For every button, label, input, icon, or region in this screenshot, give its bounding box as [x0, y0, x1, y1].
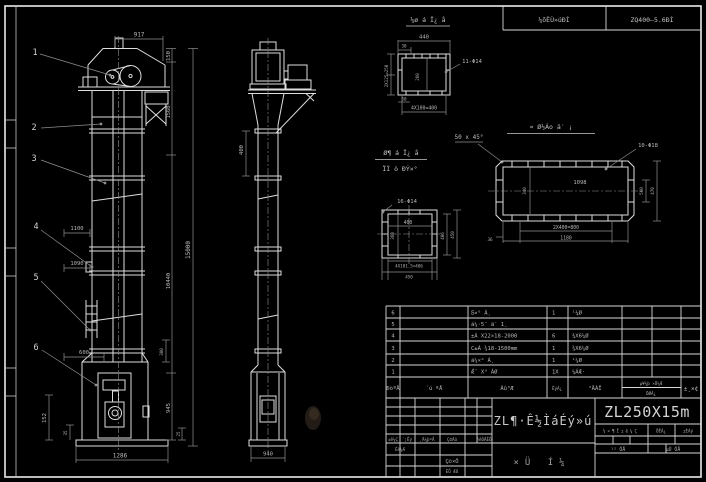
drawing-canvas: ¼õËÙ»úÐÍ ZQ400—5.6ÐÍ — [0, 0, 706, 482]
square-detail-dim-lines — [382, 205, 461, 280]
dim-front-total-height: 15000 — [185, 241, 192, 259]
part-row-no: 1 — [391, 370, 394, 376]
part-row-name: á¼·5¨ ä′ 1¸ — [471, 321, 507, 328]
stage-mark-label: ½×¶Î±ê¼Ç — [603, 429, 639, 435]
balloon-4: 4 — [33, 222, 38, 232]
part-row-name: Ƽ×° Á¸ — [471, 310, 491, 317]
dim-front-boot-left-2: 35 — [63, 430, 68, 436]
part-row-no: 6 — [391, 311, 394, 317]
dim-channel-offset: 30 — [401, 44, 407, 49]
chamfer-note: 50 x 45° — [455, 134, 484, 141]
side-view-geometry — [248, 42, 316, 446]
parts-header-code: ´ú ºÅ — [426, 385, 443, 392]
dim-channel-left: 2X125=250 — [384, 64, 389, 87]
rev-header-mark: ±ê¼Ç — [388, 437, 399, 443]
channel-holes-callout: 11-Φ14 — [462, 59, 483, 65]
balloon-6: 6 — [33, 343, 38, 353]
flange-detail-label: ¤ Ø½Áo ä′ ¡ — [529, 122, 572, 131]
part-row-no: 4 — [391, 334, 395, 340]
part-row-name: C±Á ¾18-1500mm — [471, 345, 518, 352]
model-number: ZL250X15m — [604, 403, 690, 421]
date-label: ÈÕ ÆÚ — [446, 469, 459, 474]
parts-header-name: Ãû³Æ — [500, 385, 514, 392]
drawing-title: ZL¶·Ê½ÌáÉý»ú — [494, 413, 593, 428]
balloon-leaders — [40, 54, 111, 386]
parts-table-rows: 6 Ƽ×° Á¸ 1 ¹¼Ø 5 á¼·5¨ ä′ 1¸ 4 ±Á X22×18… — [391, 310, 589, 376]
dim-flange-corner: 36 — [487, 237, 493, 242]
part-row-no: 2 — [391, 358, 394, 364]
dim-channel-top: 440 — [419, 35, 429, 41]
mass-label: ÖÊÁ¿ — [656, 429, 667, 434]
dim-front-top-width: 917 — [134, 32, 145, 39]
dim-square-bottom-1: 4X101.5=406 — [395, 264, 423, 269]
dim-square-right-2: 450 — [450, 231, 455, 239]
sheet-inner-border — [5, 6, 16, 477]
dim-channel-inner: 260 — [415, 73, 420, 81]
part-row-name: Ǽ¨ X° ÁØ — [471, 368, 498, 376]
channel-detail-label: ¼ø á Ï¿ å — [410, 15, 445, 24]
rev-header-date: ÄêÔÂÈÕ — [476, 437, 492, 442]
part-row-name: ±Á X22×18-2000 — [471, 333, 517, 340]
dim-flange-bottom-2: 1180 — [560, 236, 572, 242]
part-row-material: ¾X6¼Ø — [572, 333, 589, 340]
part-row-qty: 1 — [552, 311, 555, 317]
sheet-border — [5, 6, 701, 477]
dim-flange-left: 340 — [522, 187, 527, 195]
dim-square-inner-v: 360 — [390, 232, 395, 240]
dim-flange-inner: 1098 — [573, 180, 586, 186]
dim-side-base-width: 940 — [263, 452, 273, 458]
dim-front-left-1: 1100 — [70, 226, 83, 232]
dim-channel-bottom: 4X100=400 — [411, 106, 437, 112]
part-row-qty: 1 — [552, 358, 555, 364]
part-row-no: 5 — [391, 322, 394, 328]
balloon-2: 2 — [31, 123, 36, 133]
dim-front-right-4: 945 — [166, 403, 172, 413]
dim-square-bottom-2: 450 — [405, 275, 413, 280]
parts-header-material: ²ÄÁÏ — [588, 385, 601, 392]
smudge-mark — [305, 406, 321, 430]
chamfer-leader — [455, 142, 503, 163]
dim-flange-right-2: 470 — [650, 187, 655, 195]
part-row-qty: 6 — [552, 334, 555, 340]
stamp-label: Ç©×Ö — [445, 458, 458, 465]
dim-front-right-5: 25 — [176, 431, 181, 437]
cad-sheet: ¼õËÙ»úÐÍ ZQ400—5.6ÐÍ — [0, 0, 706, 482]
rev-header-count: ´¦Êý — [402, 437, 413, 442]
dim-side-flange: 400 — [239, 145, 245, 155]
dim-front-right-3: 10440 — [166, 273, 172, 290]
parts-header-note-bottom: ÖØÁ¿ — [646, 391, 657, 396]
sheets-total-label: ¹² ÕÅ — [611, 446, 626, 453]
dim-front-boot-left-1: 152 — [42, 413, 48, 423]
front-view-geometry — [76, 38, 170, 446]
part-row-material: ¾X6¼Ø — [572, 345, 589, 352]
dim-front-right-2: 1560 — [166, 105, 172, 118]
header-cell-left-label: ¼õËÙ»úÐÍ — [538, 15, 569, 24]
dim-flange-bottom-1: 2X400=800 — [553, 225, 579, 231]
parts-header-no: ÐòºÅ — [386, 385, 400, 392]
dim-front-right-1: 150 — [166, 51, 172, 61]
part-row-qty: 1 — [552, 346, 555, 352]
rev-header-fileno: ¸Ä¼þºÅ — [419, 437, 435, 443]
parts-table-header: ÐòºÅ ´ú ºÅ Ãû³Æ ÊýÁ¿ ²ÄÁÏ µ¥¼þ ×Ü¼Æ ÖØÁ¿… — [386, 381, 698, 396]
flange-holes-callout: 10-Φ18 — [638, 143, 658, 149]
mid-label-line1: Ø¶ á Ï¿ å — [383, 148, 418, 157]
parts-header-qty: ÊýÁ¿ — [552, 386, 563, 391]
dim-front-boot-top: 600 — [79, 350, 89, 356]
part-row-no: 3 — [391, 346, 394, 352]
part-row-qty: 1X — [552, 370, 559, 376]
dim-square-right-1: 406 — [440, 232, 445, 240]
dim-channel-bottom-small: 50 — [401, 97, 407, 102]
channel-detail-geometry — [398, 54, 450, 95]
parts-header-remark: ±¸×¢ — [684, 386, 699, 393]
dim-front-boot-width: 1286 — [113, 453, 128, 460]
dim-square-inner-h: 400 — [404, 220, 413, 226]
part-row-material: ¹¼Ø — [572, 310, 583, 317]
balloon-1: 1 — [32, 48, 37, 58]
mid-label-line2: ÏÌ ò ÐÝ×° — [382, 164, 417, 173]
rev-header-sign: Ç©Ãû — [447, 437, 458, 442]
dim-flange-right-1: 560 — [639, 187, 644, 195]
balloon-3: 3 — [31, 154, 36, 164]
dim-front-right-6: 380 — [159, 348, 164, 356]
balloon-5: 5 — [33, 273, 38, 283]
sheet-type-label: ×Ü Í¼ — [513, 456, 570, 468]
square-holes-callout: 16-Φ14 — [397, 199, 418, 205]
header-cell-right-label: ZQ400—5.6ÐÍ — [630, 15, 673, 24]
part-row-material: ¹¼Ø — [572, 357, 583, 364]
parts-header-note-top: µ¥¼þ ×Ü¼Æ — [640, 381, 663, 387]
scale-label: ±ÈÀý — [683, 429, 694, 434]
part-row-name: á¼×° Á¸ — [471, 357, 494, 364]
sheet-number-label: µÚ ÕÅ — [666, 446, 681, 453]
part-row-material: ¼ÁÆ· — [572, 369, 585, 376]
dim-front-left-2: 1090 — [70, 261, 83, 267]
